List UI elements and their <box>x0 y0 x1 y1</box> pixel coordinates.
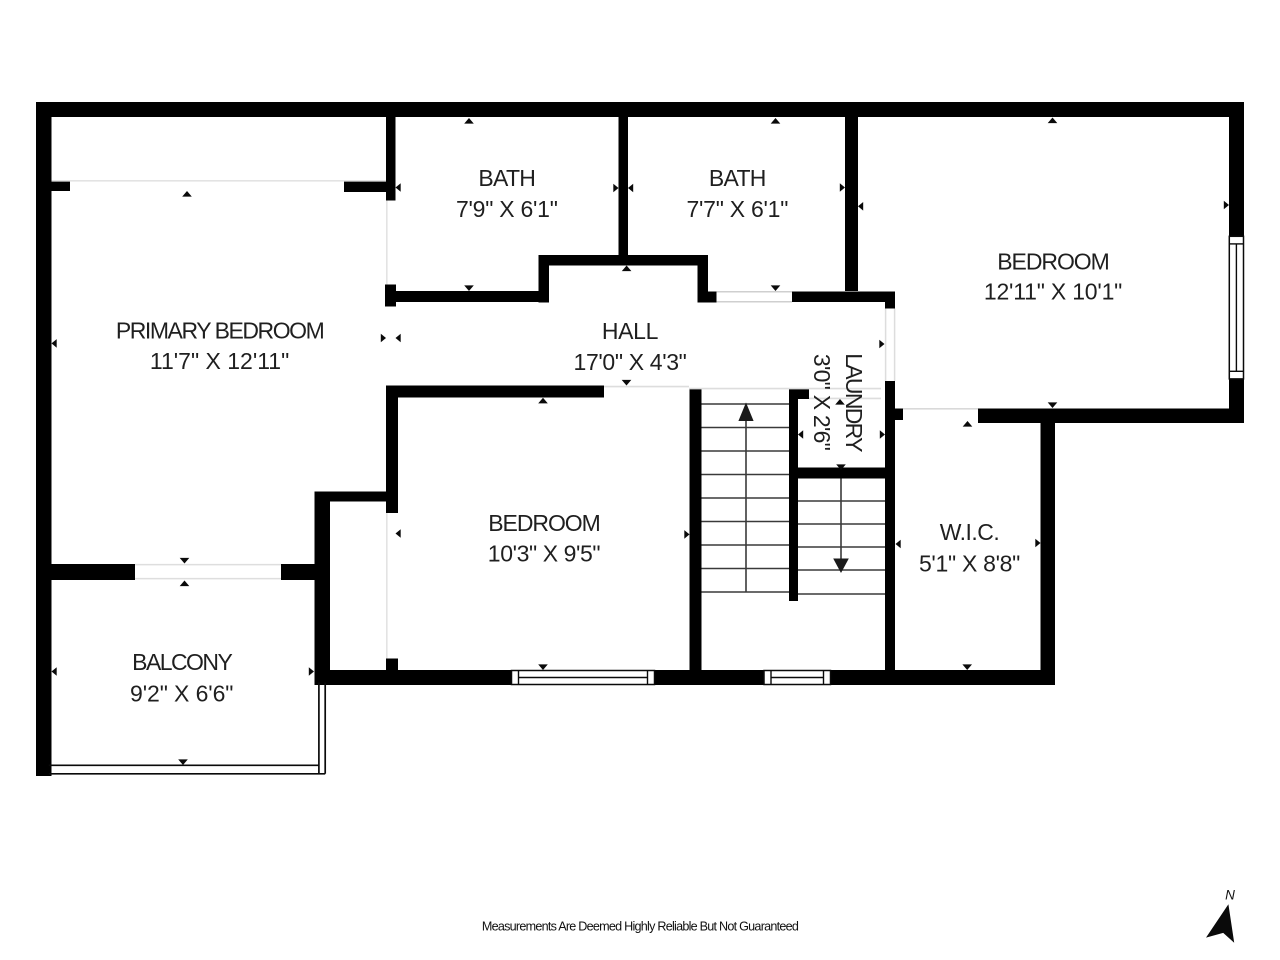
svg-text:10'3" X 9'5": 10'3" X 9'5" <box>488 541 601 567</box>
svg-text:BALCONY: BALCONY <box>132 649 232 675</box>
svg-text:Measurements Are Deemed Highly: Measurements Are Deemed Highly Reliable … <box>482 920 799 934</box>
svg-text:5'1" X 8'8": 5'1" X 8'8" <box>919 550 1020 576</box>
svg-text:BEDROOM: BEDROOM <box>997 248 1109 274</box>
svg-text:BATH: BATH <box>709 165 766 191</box>
svg-text:3'0" X 2'6": 3'0" X 2'6" <box>809 354 835 451</box>
svg-text:7'9" X 6'1": 7'9" X 6'1" <box>456 196 558 222</box>
svg-text:12'11" X 10'1": 12'11" X 10'1" <box>984 279 1122 305</box>
svg-text:9'2" X 6'6": 9'2" X 6'6" <box>130 680 233 706</box>
svg-text:17'0" X 4'3": 17'0" X 4'3" <box>574 349 687 375</box>
svg-text:W.I.C.: W.I.C. <box>940 519 1000 545</box>
svg-text:LAUNDRY: LAUNDRY <box>841 353 867 452</box>
svg-text:BATH: BATH <box>478 165 535 191</box>
svg-text:N: N <box>1225 888 1235 903</box>
svg-text:PRIMARY BEDROOM: PRIMARY BEDROOM <box>116 318 324 344</box>
svg-text:7'7" X 6'1": 7'7" X 6'1" <box>686 196 788 222</box>
svg-text:11'7" X 12'11": 11'7" X 12'11" <box>150 348 289 374</box>
svg-text:BEDROOM: BEDROOM <box>488 510 600 536</box>
svg-text:HALL: HALL <box>602 318 659 344</box>
